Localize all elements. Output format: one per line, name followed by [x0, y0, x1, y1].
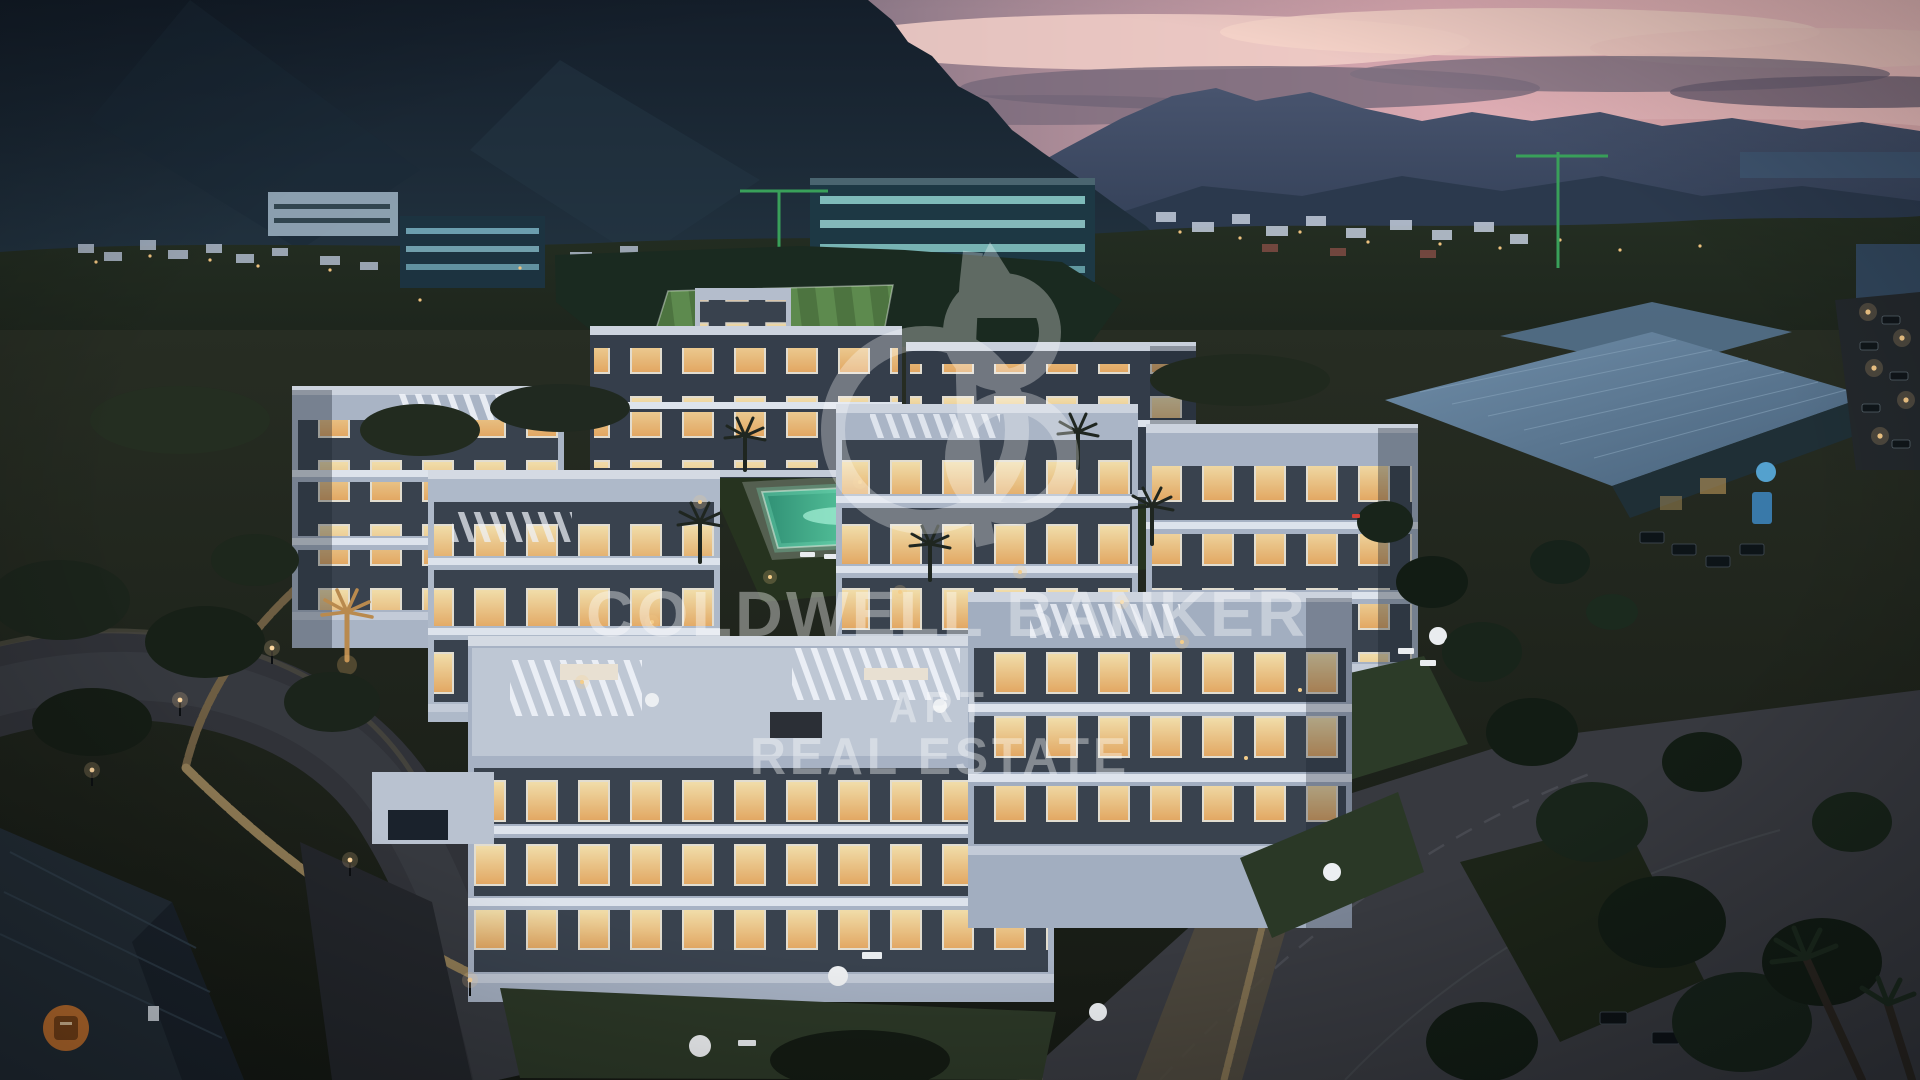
watermark-line3: REAL ESTATE — [750, 728, 1130, 786]
watermark-line1: COLDWELL BANKER — [586, 578, 1308, 650]
vignette-overlay — [0, 0, 1920, 1080]
scene-canvas: COLDWELL BANKER ART REAL ESTATE — [0, 0, 1920, 1080]
watermark-line2: ART — [889, 683, 991, 732]
property-render-image: COLDWELL BANKER ART REAL ESTATE — [0, 0, 1920, 1080]
